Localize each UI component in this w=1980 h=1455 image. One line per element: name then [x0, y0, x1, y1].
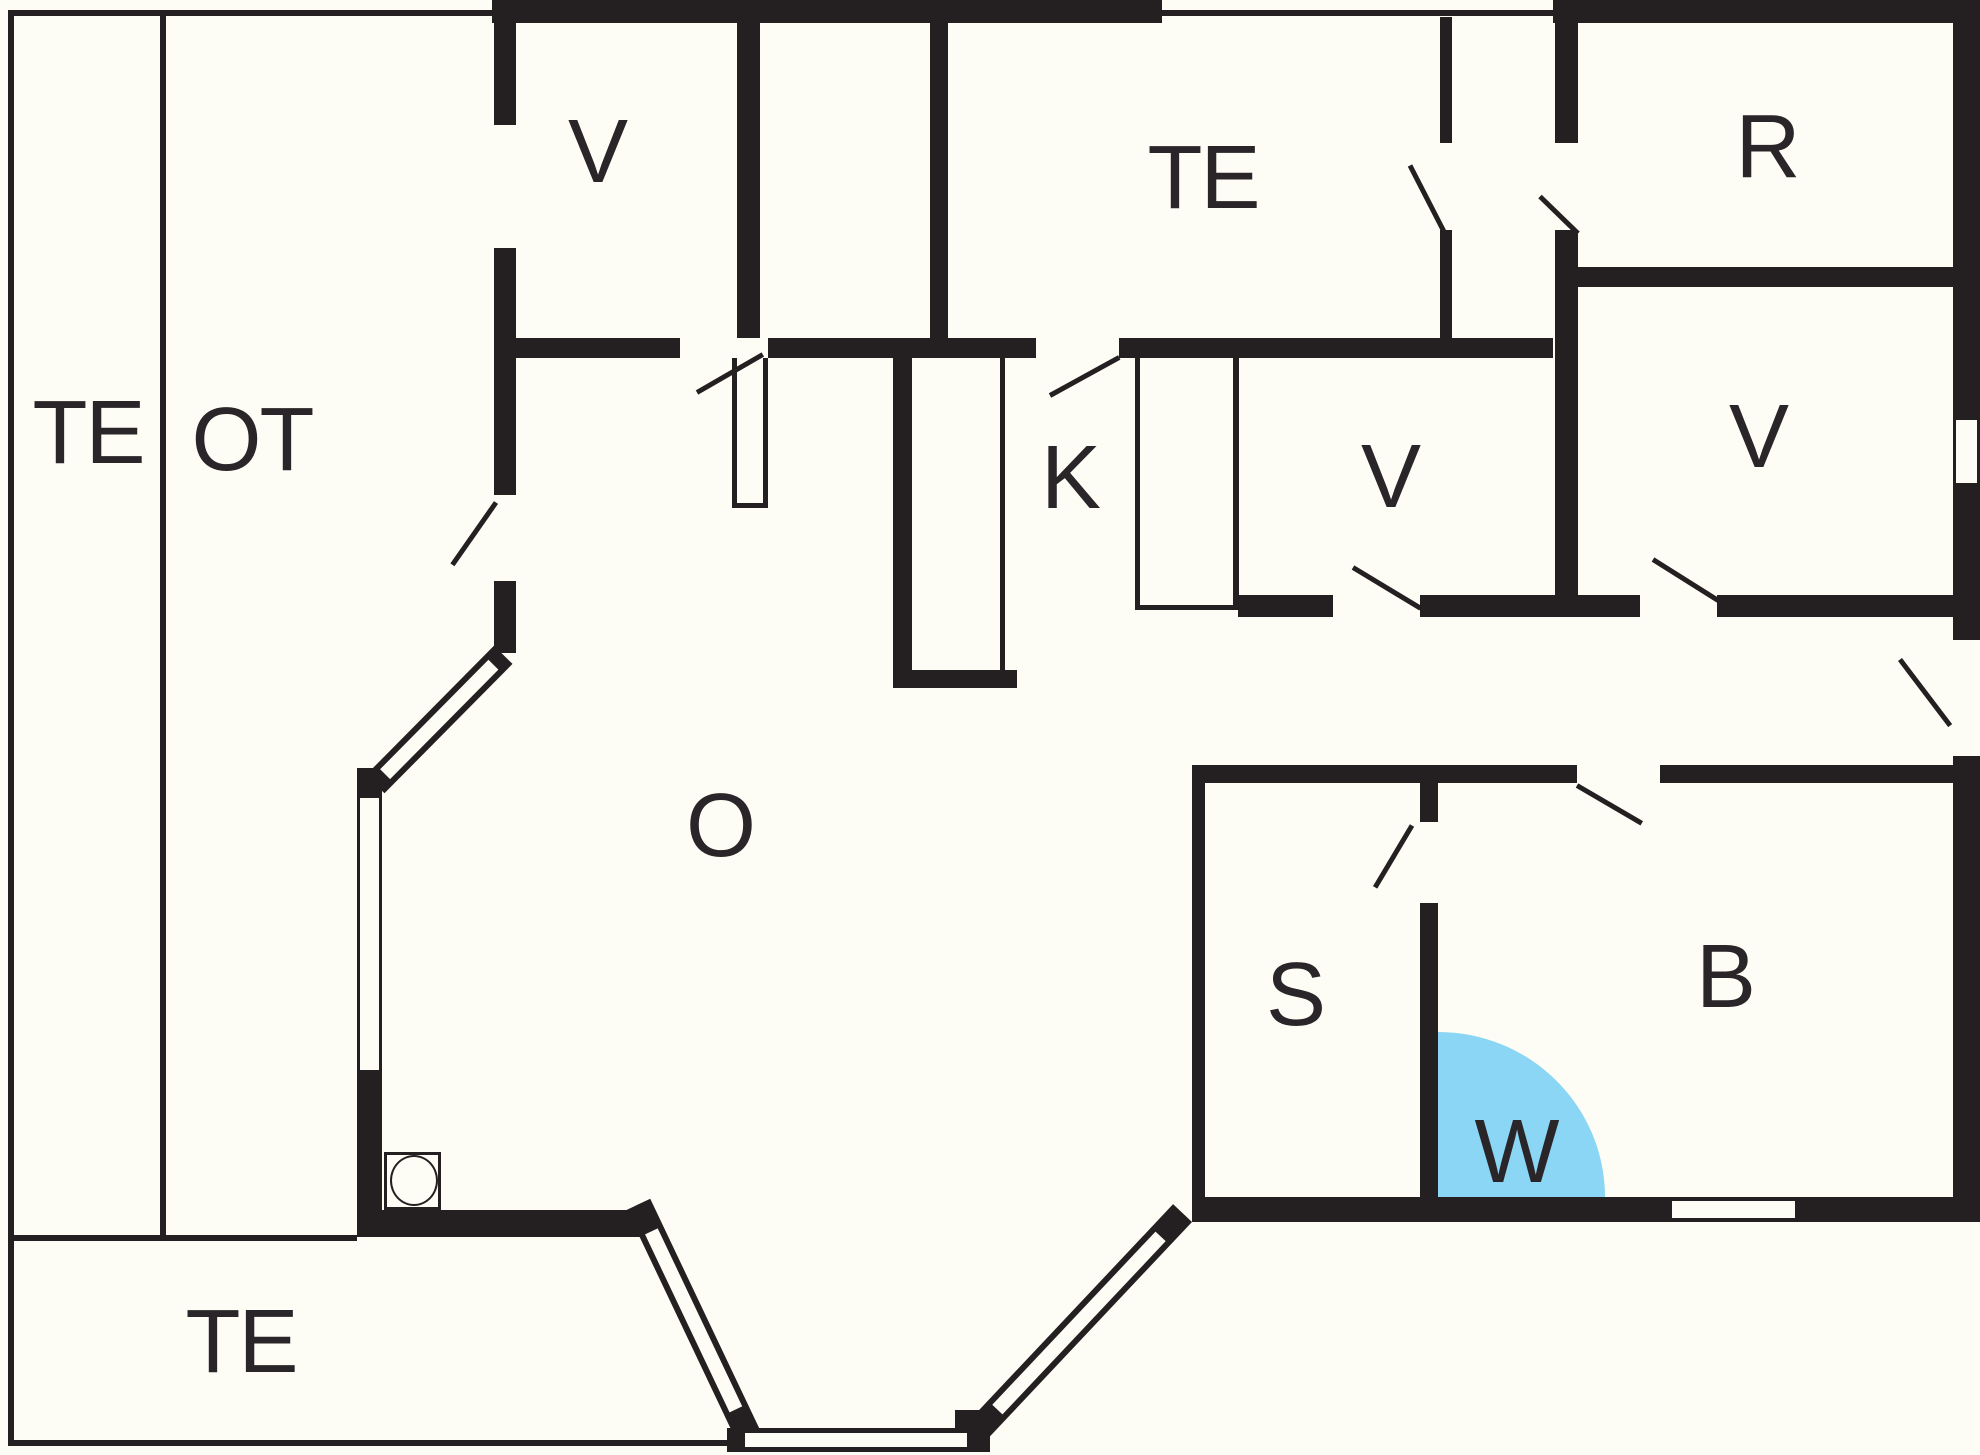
terrace-edge [1162, 10, 1553, 16]
wall [1717, 595, 1953, 617]
wall [1440, 17, 1452, 143]
door-swing [1373, 824, 1414, 888]
window [745, 1433, 967, 1447]
wall [1555, 267, 1953, 287]
door-swing [1898, 658, 1952, 727]
terrace-edge [8, 10, 14, 1446]
wall [737, 23, 760, 338]
closet-line [1233, 355, 1239, 610]
closet-line [1135, 605, 1239, 610]
wall [1420, 783, 1438, 822]
room-label-bathroom: B [1696, 932, 1754, 1022]
wall [1555, 17, 1578, 143]
closet-line [763, 358, 768, 508]
wall [1420, 903, 1438, 1197]
room-label-storage: R [1736, 102, 1799, 192]
room-label-kitchen: K [1041, 433, 1099, 523]
room-label-sauna: S [1266, 950, 1324, 1040]
door-swing [1408, 164, 1447, 234]
wall [494, 0, 516, 125]
wall [1238, 595, 1333, 617]
closet-line [732, 503, 768, 508]
terrace-edge [8, 1440, 737, 1446]
wall [1192, 765, 1577, 783]
bay-window [966, 1204, 1192, 1442]
kitchen-counter-line [1000, 358, 1005, 670]
window [497, 125, 513, 248]
room-label-covered-terrace: OT [192, 395, 313, 485]
room-label-bedroom-middle: V [1361, 432, 1419, 522]
bay-window [627, 1199, 761, 1442]
stove [384, 1152, 441, 1210]
wall [357, 1210, 640, 1237]
window [1956, 420, 1977, 483]
window-glass [380, 660, 498, 779]
wall [1660, 765, 1953, 783]
wall [930, 0, 948, 338]
kitchen-counter [893, 352, 912, 688]
closet-line [732, 358, 737, 508]
wall [1440, 230, 1452, 338]
room-label-bedroom-top: V [568, 107, 626, 197]
room-label-terrace-left: TE [32, 388, 143, 478]
room-label-living-room: O [686, 781, 754, 871]
room-label-terrace-top: TE [1147, 133, 1258, 223]
wall [1119, 338, 1553, 358]
terrace-edge [8, 1235, 357, 1241]
wall [494, 248, 516, 495]
wall [1420, 595, 1640, 617]
bay-window [366, 646, 512, 794]
window-glass [992, 1232, 1165, 1415]
window [1672, 1201, 1795, 1218]
room-label-terrace-bottom: TE [185, 1297, 296, 1387]
wall [1553, 0, 1980, 23]
floor-plan: TE OT V TE R K V V O S W B TE [0, 0, 1980, 1455]
wall [1953, 756, 1980, 1222]
wall [516, 338, 680, 358]
closet-line [1135, 355, 1140, 610]
door-swing [1576, 783, 1643, 825]
stove-burner-icon [390, 1155, 438, 1206]
terrace-edge [8, 10, 494, 16]
wall [1953, 0, 1980, 640]
room-label-wet-room: W [1475, 1107, 1558, 1197]
door-swing [696, 352, 764, 394]
kitchen-counter [893, 670, 1017, 688]
door-swing [1352, 565, 1422, 610]
door-swing [1652, 557, 1720, 602]
room-label-bedroom-right: V [1729, 392, 1787, 482]
window-glass [645, 1228, 742, 1412]
wall [1192, 1197, 1980, 1222]
wall [492, 0, 1162, 23]
window [360, 798, 379, 1070]
terrace-divider [160, 16, 166, 1238]
door-swing [450, 501, 498, 566]
wall [1192, 783, 1205, 1197]
wall [494, 581, 516, 653]
door-swing [1049, 355, 1121, 397]
